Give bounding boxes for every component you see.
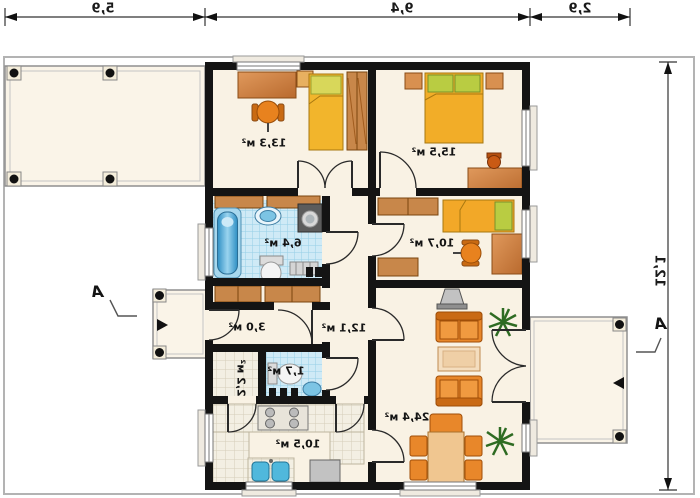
- porch-post: [153, 346, 166, 359]
- room-label-hall: 12,1 м²: [322, 323, 367, 334]
- room-label-vestibule: 3,0 м²: [228, 322, 265, 333]
- radiator-block: [291, 388, 298, 396]
- dining-chair: [465, 436, 482, 456]
- room-label-living: 24,4 м²: [385, 412, 430, 423]
- hall-wardrobes: [215, 286, 320, 302]
- terrace-post: [103, 172, 117, 186]
- dim-label-height: 12,1: [653, 255, 666, 287]
- window: [198, 224, 213, 280]
- dining-table: [428, 432, 464, 486]
- wardrobe: [347, 72, 367, 150]
- sofa: [436, 312, 482, 342]
- stove: [258, 406, 308, 430]
- desk: [492, 234, 522, 274]
- window: [400, 482, 480, 496]
- double-bed: [425, 73, 483, 143]
- floor-plan-page: 5,9 9,4 2,9 12,1 A A 13,3 м² 15,5 м² 6,4…: [0, 0, 700, 498]
- vase: [487, 153, 501, 169]
- radiator-block: [315, 267, 322, 277]
- window: [522, 420, 537, 456]
- single-bed: [443, 200, 514, 232]
- dim-label-middle: 9,4: [390, 3, 413, 16]
- terrace-post: [7, 172, 21, 186]
- dining-chair: [465, 460, 482, 480]
- coffee-table: [438, 347, 480, 371]
- terrace-post: [613, 430, 626, 443]
- porch-entry: [153, 289, 207, 359]
- terrace-right: [530, 317, 627, 443]
- dim-label-right: 2,9: [568, 3, 591, 16]
- window: [233, 56, 304, 70]
- wardrobe: [378, 198, 438, 215]
- kitchen-counter-left: [213, 432, 249, 486]
- sink: [255, 207, 281, 225]
- desk: [238, 72, 296, 98]
- room-label-room1: 13,3 м²: [242, 138, 287, 149]
- dim-label-left: 5,9: [91, 3, 114, 16]
- room-label-bathroom: 6,4 м²: [264, 238, 301, 249]
- washing-machine: [298, 204, 322, 232]
- terrace-left: [5, 66, 205, 186]
- room-label-room2: 15,5 м²: [412, 147, 457, 158]
- sofa: [436, 376, 482, 406]
- porch-post: [153, 289, 166, 302]
- nightstand: [486, 73, 503, 89]
- radiator-block: [280, 388, 287, 396]
- terrace-post: [7, 66, 21, 80]
- dining-chair: [410, 436, 427, 456]
- section-marker-left: A: [91, 284, 103, 300]
- terrace-post: [613, 318, 626, 331]
- room-label-pantry: 2,2 м²: [236, 359, 247, 396]
- radiator-block: [306, 267, 313, 277]
- bathtub: [214, 208, 241, 278]
- window: [522, 206, 537, 262]
- towel-radiator: [290, 262, 318, 275]
- room-label-wc: 1,7 м²: [267, 366, 304, 377]
- floor-plan-drawing: [0, 0, 700, 498]
- nightstand: [405, 73, 422, 89]
- sink: [303, 382, 321, 396]
- window: [522, 106, 537, 170]
- single-bed: [309, 74, 343, 150]
- dining-chair: [410, 460, 427, 480]
- dining-chair: [430, 414, 462, 434]
- window: [242, 482, 296, 496]
- cabinet: [378, 258, 418, 276]
- section-marker-right: A: [654, 316, 666, 332]
- room-label-kitchen: 10,5 м²: [276, 439, 321, 450]
- terrace-post: [103, 66, 117, 80]
- radiator-block: [269, 388, 276, 396]
- kitchen-counter-right: [330, 432, 364, 464]
- window: [198, 410, 213, 466]
- room-label-room3: 10,7 м²: [410, 238, 455, 249]
